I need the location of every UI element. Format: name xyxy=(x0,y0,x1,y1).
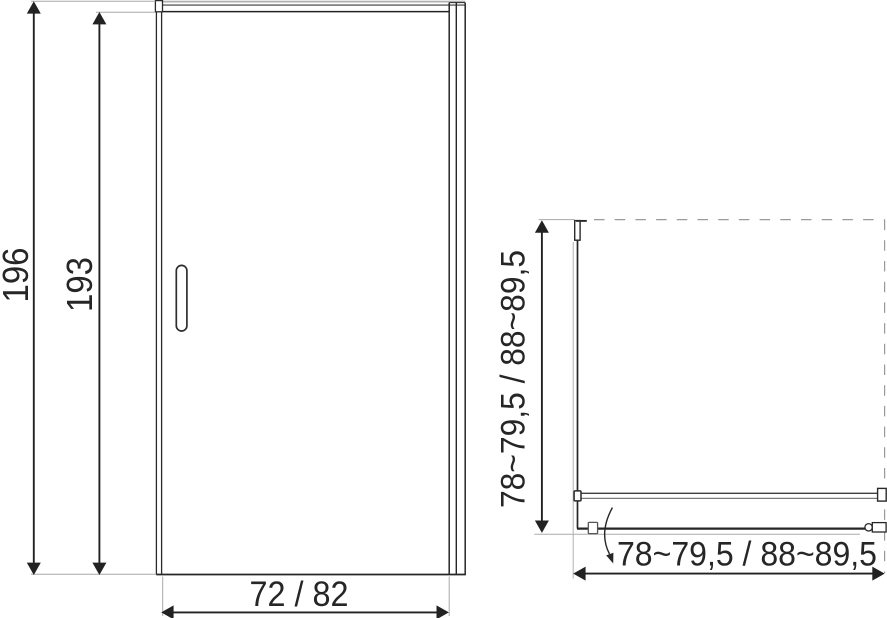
svg-text:72 / 82: 72 / 82 xyxy=(250,575,349,614)
svg-text:193: 193 xyxy=(59,257,100,312)
svg-text:78~79,5 / 88~89,5: 78~79,5 / 88~89,5 xyxy=(617,536,877,574)
svg-text:78~79,5 / 88~89,5: 78~79,5 / 88~89,5 xyxy=(495,250,533,508)
svg-text:196: 196 xyxy=(0,248,36,303)
